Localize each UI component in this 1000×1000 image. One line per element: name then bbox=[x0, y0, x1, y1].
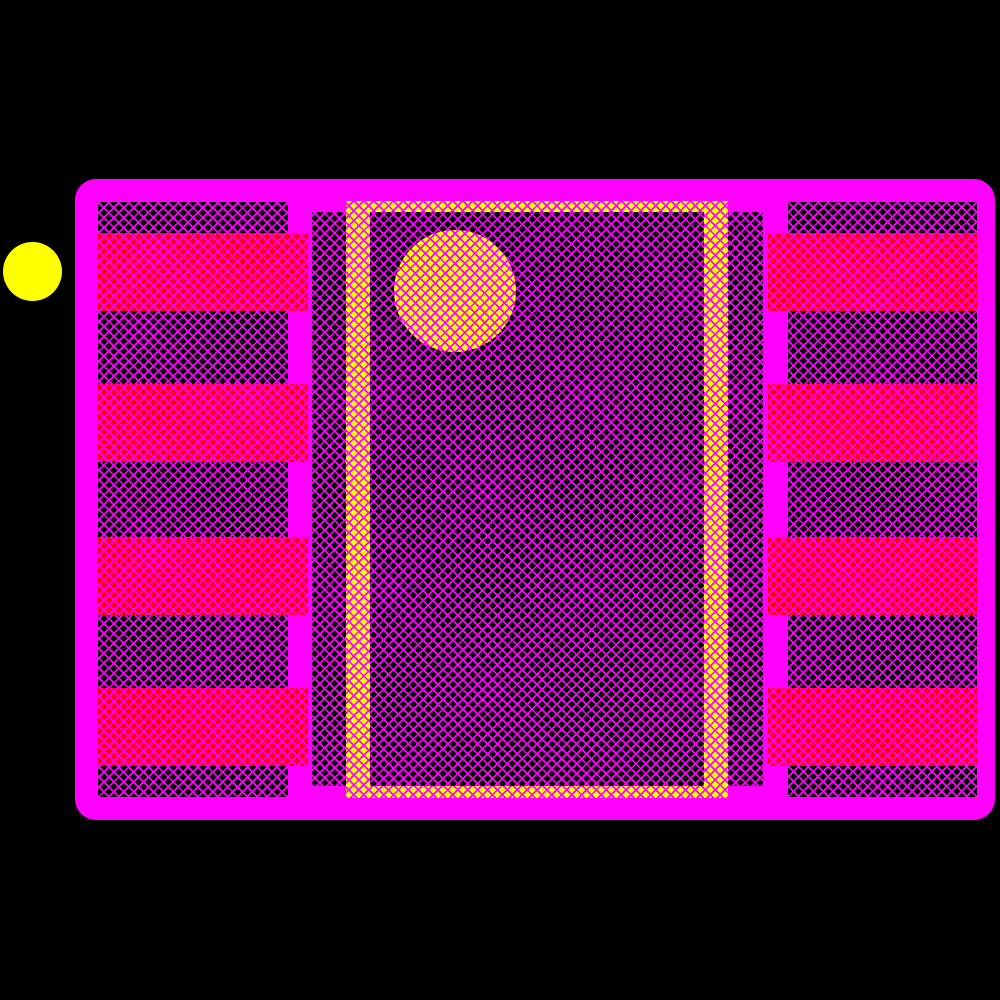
pad-right-3 bbox=[768, 537, 977, 615]
pad-left-2 bbox=[98, 384, 308, 462]
pad-right-4 bbox=[768, 688, 977, 766]
pad-right-1 bbox=[768, 233, 977, 311]
pad-right-2 bbox=[768, 384, 977, 462]
footprint-preview-canvas bbox=[0, 0, 1000, 1000]
pad-left-1 bbox=[98, 233, 308, 311]
pads-layer bbox=[0, 0, 1000, 1000]
pad-left-4 bbox=[98, 688, 308, 766]
pad-left-3 bbox=[98, 537, 308, 615]
